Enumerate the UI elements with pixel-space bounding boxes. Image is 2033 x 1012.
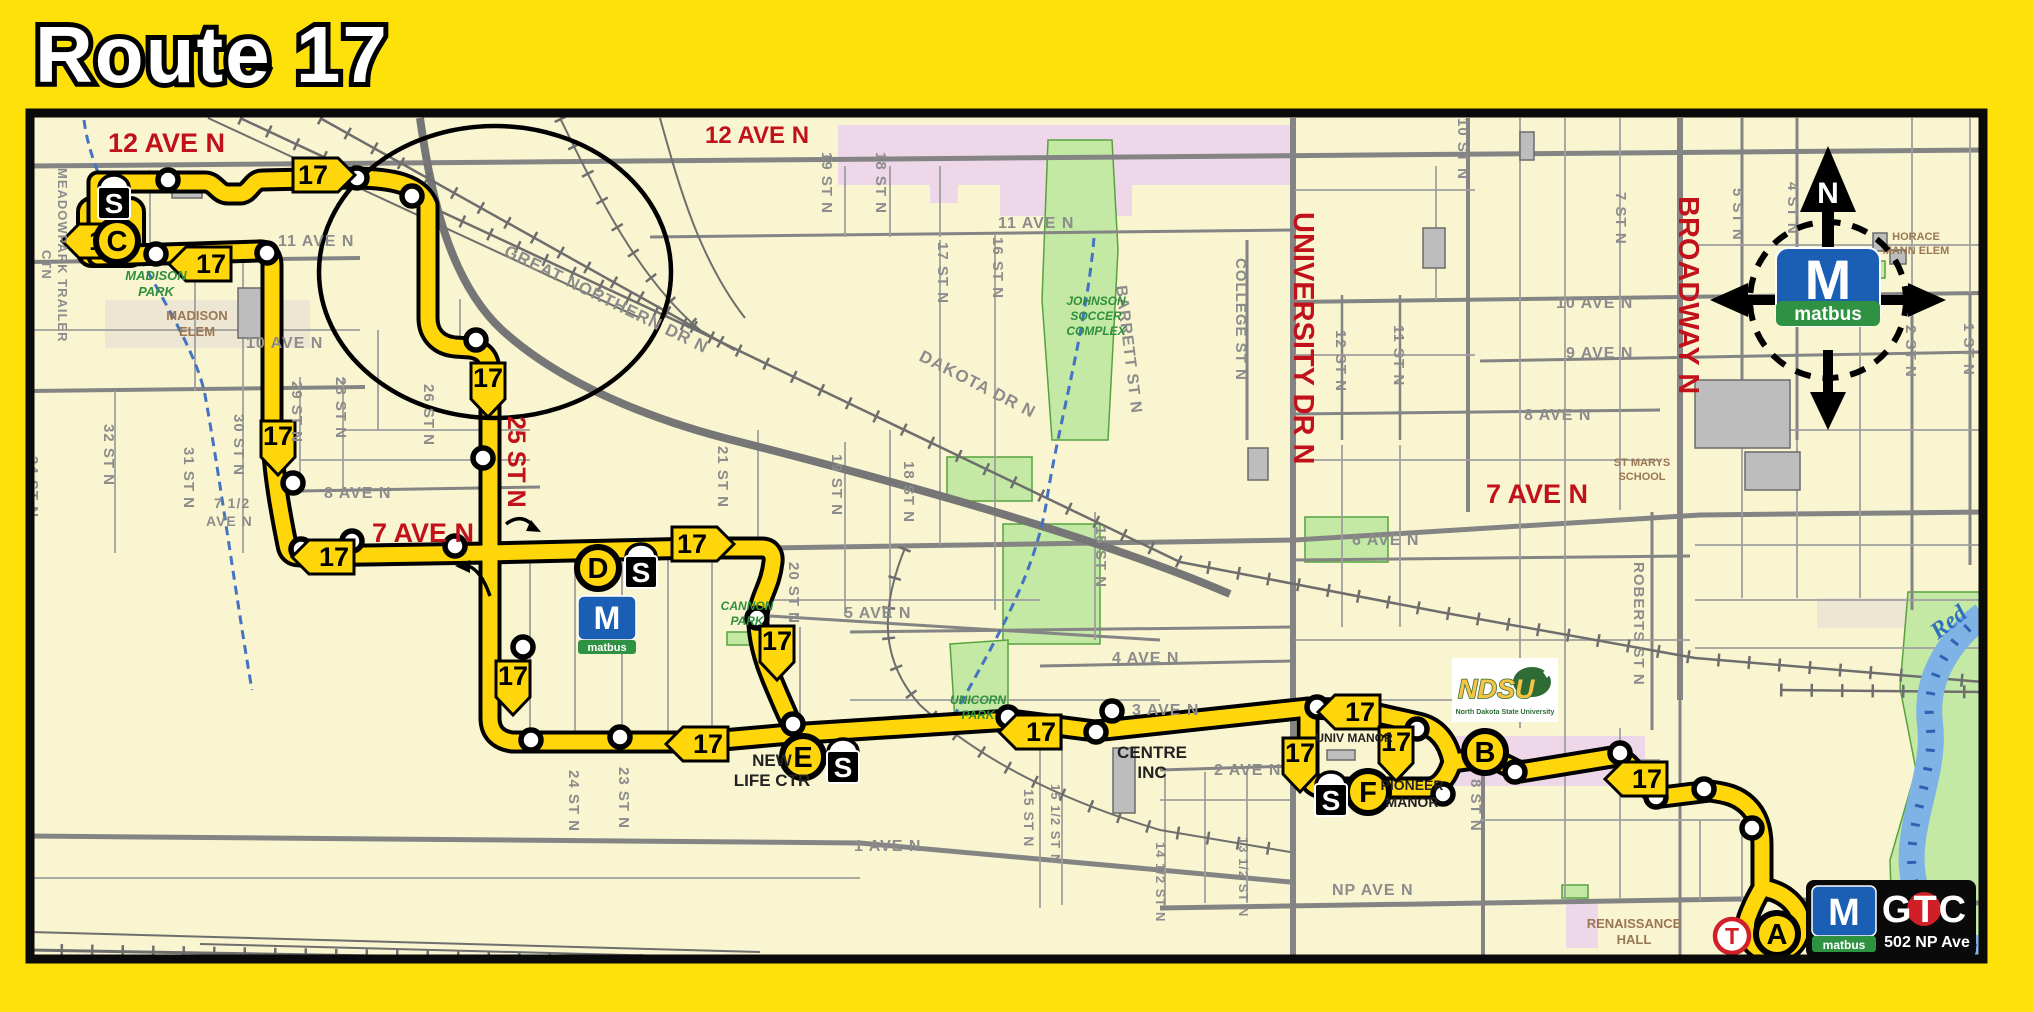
matbus-logo-small: M matbus xyxy=(578,596,636,654)
street-label: 21 ST N xyxy=(714,446,731,508)
shelter-icon: S xyxy=(827,739,859,783)
street-label: 13 1/2 ST N xyxy=(1236,837,1251,917)
bus-stop-dot xyxy=(513,637,533,657)
street-label: 19 ST N xyxy=(818,152,835,214)
street-label: 10 ST N xyxy=(1454,118,1471,180)
street-label: 15 1/2 ST N xyxy=(1048,784,1063,864)
badge-number: 17 xyxy=(1026,717,1056,747)
bus-stop-dot xyxy=(257,243,277,263)
building xyxy=(1520,132,1534,160)
shelter-letter: S xyxy=(834,752,853,783)
station-letter: B xyxy=(1475,737,1496,769)
street-label: 8 AVE N xyxy=(324,485,391,502)
street-label: ROBERTS ST N xyxy=(1630,562,1647,686)
street-label: 9 AVE N xyxy=(1566,345,1633,362)
street-label: 11 AVE N xyxy=(998,215,1074,232)
street-label: 3 AVE N xyxy=(1132,702,1199,719)
street-label: 2 AVE N xyxy=(1214,762,1281,779)
station-D: D xyxy=(577,547,619,589)
shelter-letter: S xyxy=(632,557,651,588)
park-area xyxy=(1042,140,1118,440)
street-label: 5 ST N xyxy=(1729,188,1746,241)
matbus-logo-name: matbus xyxy=(1794,304,1862,325)
map-canvas: 171717171717171717171717171717 CDEBFAT S… xyxy=(24,113,1983,978)
bus-stop-dot xyxy=(1505,762,1525,782)
shelter-letter: S xyxy=(1322,785,1341,816)
street-label: 6 AVE N xyxy=(1352,532,1419,549)
bus-stop-dot xyxy=(521,730,541,750)
ndsu-logo: NDSU North Dakota State University xyxy=(1452,658,1558,722)
place-label: PIONEERMANOR xyxy=(1380,777,1443,810)
station-letter: A xyxy=(1767,919,1788,951)
street-label: 11 AVE N xyxy=(278,233,354,250)
street-label: 15 ST N xyxy=(1021,789,1037,847)
street-label: 12 AVE N xyxy=(705,122,809,149)
street-label: 7 1/2 xyxy=(214,495,250,511)
gtc-logo-address: 502 NP Ave xyxy=(1884,934,1970,951)
building xyxy=(1327,750,1355,760)
street-label: AVE N xyxy=(206,513,253,529)
badge-number: 17 xyxy=(319,542,349,572)
street-label: 28 ST N xyxy=(332,377,349,439)
building xyxy=(1745,452,1800,490)
street-label: 12 ST N xyxy=(1332,330,1349,392)
street-label: 12 AVE N xyxy=(108,128,225,158)
bus-stop-dot xyxy=(402,186,422,206)
street-label: BROADWAY N xyxy=(1672,196,1704,394)
street-label: 10 AVE N xyxy=(246,335,323,352)
street-label: CTN xyxy=(39,250,54,280)
building xyxy=(1695,380,1790,448)
street-label: 1 ST N xyxy=(1960,323,1977,376)
station-A: A xyxy=(1756,913,1798,955)
building xyxy=(1423,228,1445,268)
badge-number: 17 xyxy=(1285,738,1315,768)
shelter-icon: S xyxy=(625,544,657,588)
station-letter: C xyxy=(107,226,128,258)
bus-stop-dot xyxy=(158,170,178,190)
bus-stop-dot xyxy=(283,473,303,493)
street-label: 26 ST N xyxy=(420,384,437,446)
street-label: 18 ST N xyxy=(900,461,917,523)
street-label: 30 ST N xyxy=(230,414,247,476)
bus-stop-dot xyxy=(1694,779,1714,799)
street-label: 1 AVE N xyxy=(854,838,921,855)
route-map-page: Route 17 171717171717171717171717171717 … xyxy=(0,0,2033,1012)
street-label: 2 ST N xyxy=(1902,325,1919,378)
matbus-logo: M matbus xyxy=(1776,248,1880,326)
ndsu-logo-fullname: North Dakota State University xyxy=(1456,709,1555,716)
station-letter: D xyxy=(588,553,609,585)
gtc-logo: M matbus GTC 502 NP Ave xyxy=(1806,880,1976,958)
building xyxy=(1248,448,1268,480)
street-label: 7 AVE N xyxy=(372,518,474,548)
bus-stop-dot xyxy=(1086,722,1106,742)
badge-number: 17 xyxy=(693,729,723,759)
badge-number: 17 xyxy=(498,661,528,691)
badge-number: 17 xyxy=(677,529,707,559)
matbus-small-name: matbus xyxy=(587,642,626,654)
page-title: Route 17 xyxy=(35,10,389,99)
gtc-matbus-name: matbus xyxy=(1823,938,1866,952)
station-C: C xyxy=(96,220,138,262)
street-label: 4 AVE N xyxy=(1112,650,1179,667)
place-label: UNIV MANOR xyxy=(1315,731,1393,745)
street-label: 29 ST N xyxy=(288,381,305,443)
street-label: COLLEGE ST N xyxy=(1232,258,1249,381)
gtc-matbus-m: M xyxy=(1828,892,1860,934)
badge-number: 17 xyxy=(762,626,792,656)
station-letter: T xyxy=(1725,923,1739,949)
badge-number: 17 xyxy=(298,160,328,190)
gtc-logo-name: GTC xyxy=(1882,889,1968,931)
street-label: MEADOWPARK TRAILER xyxy=(55,168,70,342)
station-B: B xyxy=(1464,731,1506,773)
street-label: 32 ST N xyxy=(100,424,117,486)
station-letter: E xyxy=(793,742,812,774)
shelter-icon: S xyxy=(1315,772,1347,816)
street-label: 7 ST N xyxy=(1612,192,1629,245)
bus-stop-dot xyxy=(1102,701,1122,721)
bus-stop-dot xyxy=(783,714,803,734)
station-T: T xyxy=(1715,919,1749,953)
compass-south-shaft-icon xyxy=(1823,350,1833,398)
bus-stop-dot xyxy=(610,727,630,747)
bus-stop-dot xyxy=(1742,818,1762,838)
badge-number: 17 xyxy=(196,249,226,279)
street-label: NP AVE N xyxy=(1332,882,1414,899)
street-label: 16 ST N xyxy=(989,237,1006,299)
street-label: 19 ST N xyxy=(828,454,845,516)
badge-number: 17 xyxy=(1632,764,1662,794)
badge-number: 17 xyxy=(1345,697,1375,727)
tan-area xyxy=(1817,598,1917,628)
route-17-map: Route 17 171717171717171717171717171717 … xyxy=(0,0,2033,1012)
matbus-small-m: M xyxy=(594,600,621,636)
street-label: 7 AVE N xyxy=(1486,479,1588,509)
street-label: 10 AVE N xyxy=(1556,295,1633,312)
street-label: 14 1/2 ST N xyxy=(1153,842,1168,922)
street-label: 17 ST N xyxy=(934,242,951,304)
street-label: 8 AVE N xyxy=(1524,407,1591,424)
street-label: 8 ST N xyxy=(1467,779,1484,832)
street-label: 31 ST N xyxy=(180,447,197,509)
bus-stop-dot xyxy=(1610,743,1630,763)
station-letter: F xyxy=(1359,777,1377,809)
bus-stop-dot xyxy=(473,448,493,468)
ndsu-logo-name: NDSU xyxy=(1458,674,1536,704)
street-label: UNIVERSITY DR N xyxy=(1287,212,1319,464)
street-label: 11 ST N xyxy=(1390,325,1407,386)
street-label: 18 ST N xyxy=(872,152,889,214)
street-label: 23 ST N xyxy=(615,767,632,829)
bus-stop-dot xyxy=(146,244,166,264)
street-label: 20 ST N xyxy=(785,562,802,624)
railroad-line xyxy=(980,962,1290,978)
street-label: 15 ST N xyxy=(1092,526,1109,588)
shelter-letter: S xyxy=(105,188,124,219)
compass-north-label: N xyxy=(1817,177,1839,210)
street-label: 25 ST N xyxy=(502,416,530,508)
badge-number: 17 xyxy=(473,363,503,393)
shelter-icon: S xyxy=(98,175,130,219)
street-label: 5 AVE N xyxy=(844,605,911,622)
place-label: JOHNSONSOCCERCOMPLEX xyxy=(1066,294,1126,338)
bus-stop-dot xyxy=(466,330,486,350)
street-label: 24 ST N xyxy=(565,770,582,832)
